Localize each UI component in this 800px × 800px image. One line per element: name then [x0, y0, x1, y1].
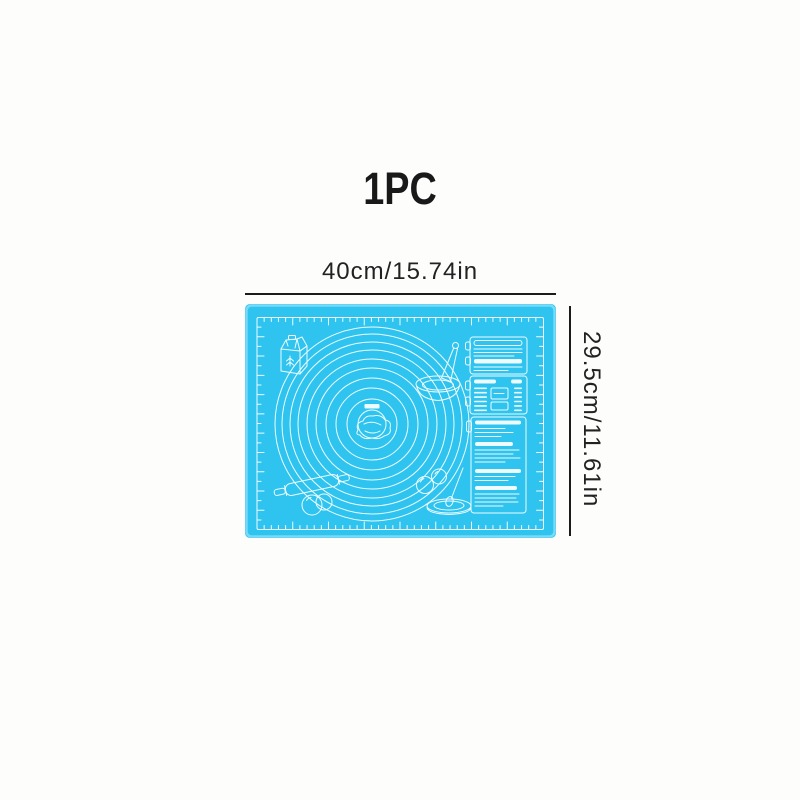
width-dimension-line: [245, 293, 556, 295]
height-dimension-line: [569, 306, 571, 536]
width-dimension-label: 40cm/15.74in: [322, 258, 478, 286]
center-size-label: [365, 404, 380, 409]
product-image: 1PC 40cm/15.74in 29.5cm/11.61in: [0, 0, 800, 800]
height-dimension-label: 29.5cm/11.61in: [577, 331, 605, 507]
quantity-title: 1PC: [363, 163, 437, 215]
pastry-mat: [245, 304, 556, 538]
